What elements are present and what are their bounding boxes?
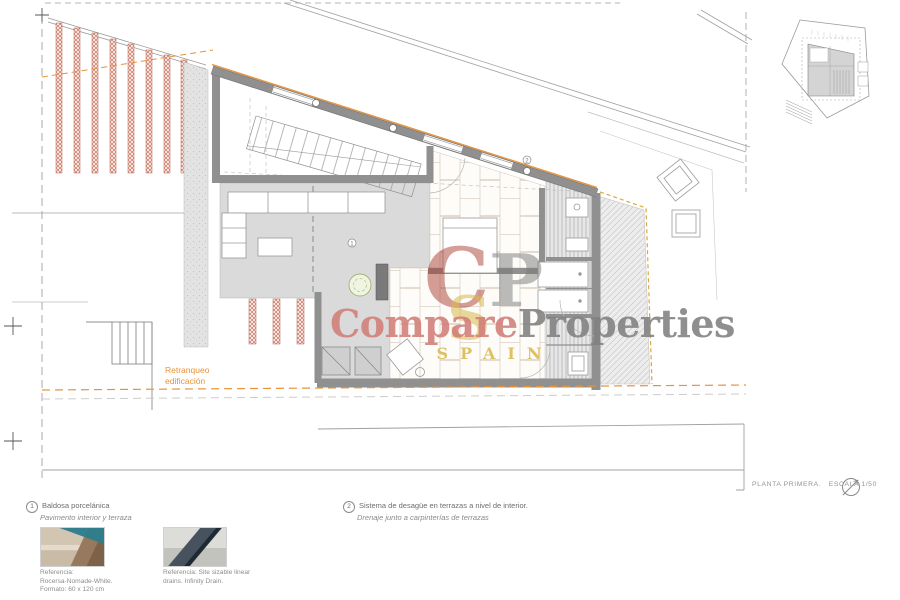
watermark-brand-properties: Properties	[518, 301, 735, 346]
architectural-plan-page: 1 2 C P S Co	[0, 0, 900, 600]
watermark-brand-compare: Compare	[330, 301, 518, 346]
watermark-brand-spain: SPAIN	[420, 344, 570, 364]
watermark-brand: CompareProperties	[330, 300, 590, 348]
pergola-strips	[249, 299, 304, 344]
plant-circle	[349, 274, 371, 296]
setback-lines	[42, 385, 746, 399]
legend-caption-1-line1: Referencia:	[40, 569, 150, 578]
legend-caption-1: Referencia: Rocersa-Nomade-White. Format…	[40, 569, 150, 595]
setback-label: Retranqueo edificación	[165, 365, 209, 388]
legend-item-2-title: Sistema de desagüe en terrazas a nivel d…	[359, 501, 528, 510]
legend-photo-drain	[163, 527, 227, 567]
party-wall-band	[184, 62, 208, 347]
exterior-stair	[112, 322, 152, 364]
key-plan-thumbnail	[782, 20, 869, 124]
legend-caption-1-line3: Formato: 60 x 120 cm	[40, 586, 150, 595]
legend-photo-tile	[40, 527, 105, 567]
legend-item-2-number: 2	[343, 501, 355, 513]
legend-item-1-subtitle: Pavimento interior y terraza	[40, 513, 176, 522]
legend-item-1-number: 1	[26, 501, 38, 513]
legend-caption-2-line1: Referencia: Site sizable linear	[163, 569, 283, 578]
sheet-scale: ESCALA 1/50	[829, 481, 877, 488]
legend-item-2-subtitle: Drenaje junto a carpinterías de terrazas	[357, 513, 583, 522]
setback-label-line2: edificación	[165, 376, 209, 387]
setback-label-line1: Retranqueo	[165, 365, 209, 376]
legend-caption-1-line2: Rocersa-Nomade-White.	[40, 578, 150, 587]
legend-caption-2: Referencia: Site sizable linear drains. …	[163, 569, 283, 586]
legend-caption-2-line2: drains. Infinity Drain.	[163, 578, 283, 587]
legend-item-1: 1Baldosa porcelánica Pavimento interior …	[26, 501, 176, 522]
legend-item-2: 2Sistema de desagüe en terrazas a nivel …	[343, 501, 583, 522]
sheet-title: PLANTA PRIMERA.	[752, 481, 821, 488]
sheet-title-block: PLANTA PRIMERA. ESCALA 1/50	[752, 481, 877, 489]
sliding-door-panel	[376, 264, 388, 300]
garden-skylights	[657, 159, 700, 237]
legend-item-1-title: Baldosa porcelánica	[42, 501, 110, 510]
